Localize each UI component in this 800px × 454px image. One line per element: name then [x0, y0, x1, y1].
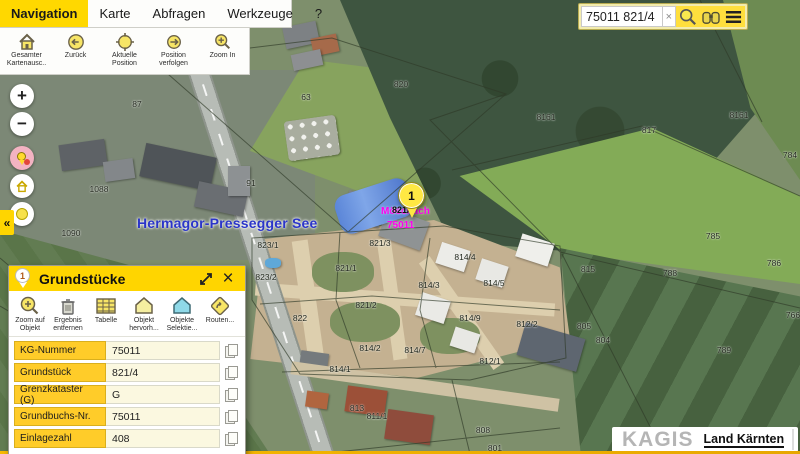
row-label: Grundbuchs-Nr.	[14, 407, 106, 426]
highlight-object-button[interactable]: Objekt hervorh...	[125, 296, 163, 333]
tool-label: entfernen	[53, 325, 83, 333]
parcel-label: 788	[663, 268, 677, 278]
copy-button[interactable]	[220, 385, 240, 404]
button-label: Position	[161, 52, 186, 60]
row-label: Grundstück	[14, 363, 106, 382]
result-marker[interactable]: 1	[398, 183, 426, 219]
zoom-to-object-button[interactable]: Zoom auf Objekt	[11, 296, 49, 333]
tool-label: Routen...	[206, 317, 234, 325]
map-zoom-out-button[interactable]: −	[10, 112, 34, 136]
kagis-wordmark: KAGIS	[622, 428, 694, 452]
copy-icon	[225, 432, 236, 445]
track-position-button[interactable]: Position verfolgen	[149, 31, 198, 74]
table-icon	[95, 296, 117, 316]
table-row: Grundbuchs-Nr. 75011	[14, 407, 240, 426]
current-position-button[interactable]: Aktuelle Position	[100, 31, 149, 74]
tab-werkzeuge[interactable]: Werkzeuge	[216, 0, 304, 27]
remove-result-button[interactable]: Ergebnis entfernen	[49, 296, 87, 333]
parcel-label: 823/2	[255, 272, 276, 282]
kagis-app: 8763820816181618177841088911090785786815…	[0, 0, 800, 454]
navigation-toolbar: Gesamter Kartenausc.. Zurück Aktuelle Po…	[0, 28, 250, 75]
full-extent-button[interactable]: Gesamter Kartenausc..	[2, 31, 51, 74]
tab-abfragen[interactable]: Abfragen	[142, 0, 217, 27]
copy-button[interactable]	[220, 429, 240, 448]
search-icon	[679, 8, 697, 26]
tool-label: Selektie...	[167, 325, 198, 333]
row-label: Grenzkataster (G)	[14, 385, 106, 404]
button-label: Zoom In	[210, 52, 236, 60]
parcel-label: 808	[476, 425, 490, 435]
parcel-label: 8161	[537, 112, 556, 122]
tab-help[interactable]: ?	[304, 0, 333, 27]
parcel-label: 814/1	[329, 364, 350, 374]
table-button[interactable]: Tabelle	[87, 296, 125, 333]
tool-label: Zoom auf	[15, 317, 45, 325]
copy-icon	[225, 344, 236, 357]
parcel-label: 87	[132, 99, 141, 109]
parcel-label: 822	[293, 313, 307, 323]
parcel-label: 813	[350, 403, 364, 413]
home-icon	[17, 33, 37, 51]
parcel-label: 812/2	[516, 319, 537, 329]
parcel-label: 814/3	[418, 280, 439, 290]
back-button[interactable]: Zurück	[51, 31, 100, 74]
zoom-in-icon	[213, 33, 233, 51]
parcel-label: 804	[596, 335, 610, 345]
parcel-label: 821/3	[369, 238, 390, 248]
table-row: KG-Nummer 75011	[14, 341, 240, 360]
collapse-panel-button[interactable]: «	[0, 210, 14, 235]
search-button[interactable]	[676, 6, 699, 27]
parcel-label: 766	[786, 310, 800, 320]
zoom-in-button[interactable]: Zoom In	[198, 31, 247, 74]
parcel-label: 91	[246, 178, 255, 188]
parcel-label: 821/1	[335, 263, 356, 273]
binoculars-icon	[702, 9, 720, 25]
row-value: 821/4	[106, 363, 220, 382]
marker-badge: 1	[399, 183, 424, 208]
tool-label: hervorh...	[129, 325, 159, 333]
result-pin-icon: 1	[15, 268, 32, 289]
clear-search-icon[interactable]: ×	[663, 6, 676, 27]
button-label: Aktuelle	[112, 52, 137, 60]
table-row: Einlagezahl 408	[14, 429, 240, 448]
expand-icon	[198, 271, 214, 287]
kagis-logo: KAGIS	[792, 429, 794, 450]
parcel-label: 785	[706, 231, 720, 241]
track-position-icon	[164, 33, 184, 51]
route-icon	[209, 296, 231, 316]
route-button[interactable]: Routen...	[201, 296, 239, 333]
tab-karte[interactable]: Karte	[88, 0, 141, 27]
parcel-label: 1088	[90, 184, 109, 194]
trash-icon	[58, 296, 78, 316]
branding-bar: KAGIS Land Kärnten KAGIS	[612, 427, 798, 452]
parcel-label: 805	[577, 321, 591, 331]
parcel-label: 811/1	[367, 411, 388, 421]
parcel-label: 814/4	[454, 252, 475, 262]
current-position-icon	[115, 33, 135, 51]
copy-icon	[225, 410, 236, 423]
parcel-label: 812/1	[479, 356, 500, 366]
result-popup: 1 Grundstücke × Zoom auf Objekt Ergebnis…	[8, 265, 246, 454]
back-icon	[66, 33, 86, 51]
zoom-to-object-icon	[19, 296, 41, 316]
copy-icon	[225, 388, 236, 401]
parcel-label: 786	[767, 258, 781, 268]
menu-bar: Navigation Karte Abfragen Werkzeuge ?	[0, 0, 292, 28]
popup-badge: 1	[15, 268, 30, 283]
table-row: Grundstück 821/4	[14, 363, 240, 382]
button-label: Gesamter	[11, 52, 42, 60]
parcel-label: 8161	[730, 110, 749, 120]
town-label: Hermagor-Pressegger See	[137, 215, 317, 231]
tool-label: Objekt	[20, 325, 40, 333]
locate-dot-icon	[16, 208, 28, 220]
button-label: Zurück	[65, 52, 86, 60]
parcel-label: 815	[581, 264, 595, 274]
row-value: 75011	[106, 407, 220, 426]
popup-header[interactable]: 1 Grundstücke ×	[9, 266, 245, 291]
pin-badge-icon	[17, 152, 27, 165]
search-input[interactable]	[581, 6, 663, 27]
search-menu-button[interactable]	[722, 6, 745, 27]
land-kaernten-link[interactable]: Land Kärnten	[704, 432, 785, 448]
tool-label: Objekte	[170, 317, 194, 325]
copy-button[interactable]	[220, 407, 240, 426]
parcel-label: 814/9	[459, 313, 480, 323]
table-row: Grenzkataster (G) G	[14, 385, 240, 404]
home-extent-button[interactable]	[10, 174, 34, 198]
parcel-label: 821/2	[355, 300, 376, 310]
hamburger-icon	[725, 10, 742, 24]
popup-title: Grundstücke	[39, 271, 195, 287]
expand-popup-button[interactable]	[195, 268, 217, 290]
highlight-object-icon	[133, 296, 155, 316]
search-widget: ×	[578, 3, 748, 30]
row-value: 75011	[106, 341, 220, 360]
tool-label: Tabelle	[95, 317, 117, 325]
parcel-label: 1090	[62, 228, 81, 238]
parcel-label: 820	[394, 79, 408, 89]
parcel-label: 814/7	[404, 345, 425, 355]
row-label: Einlagezahl	[14, 429, 106, 448]
marker-tool-button[interactable]	[10, 146, 34, 170]
button-label: Position	[112, 60, 137, 68]
parcel-label: 817	[642, 125, 656, 135]
row-value: G	[106, 385, 220, 404]
copy-button[interactable]	[220, 363, 240, 382]
button-label: verfolgen	[159, 60, 188, 68]
parcel-label: 823/1	[257, 240, 278, 250]
attribute-table: KG-Nummer 75011 Grundstück 821/4 Grenzka…	[9, 337, 245, 454]
parcel-label: 789	[717, 345, 731, 355]
close-popup-button[interactable]: ×	[217, 268, 239, 290]
row-value: 408	[106, 429, 220, 448]
copy-button[interactable]	[220, 341, 240, 360]
select-objects-button[interactable]: Objekte Selektie...	[163, 296, 201, 333]
tool-label: Ergebnis	[54, 317, 82, 325]
map-zoom-in-button[interactable]: +	[10, 84, 34, 108]
copy-icon	[225, 366, 236, 379]
button-label: Kartenausc..	[7, 60, 46, 68]
popup-toolbar: Zoom auf Objekt Ergebnis entfernen Tabel…	[9, 291, 245, 337]
selection-kg-number: 75011	[387, 220, 414, 231]
row-label: KG-Nummer	[14, 341, 106, 360]
parcel-label: 63	[301, 92, 310, 102]
select-objects-icon	[171, 296, 193, 316]
home-icon	[15, 180, 29, 193]
parcel-label: 814/2	[359, 343, 380, 353]
parcel-label: 784	[783, 150, 797, 160]
tool-label: Objekt	[134, 317, 154, 325]
binoculars-button[interactable]	[699, 6, 722, 27]
parcel-label: 814/5	[483, 278, 504, 288]
tab-navigation[interactable]: Navigation	[0, 0, 88, 27]
